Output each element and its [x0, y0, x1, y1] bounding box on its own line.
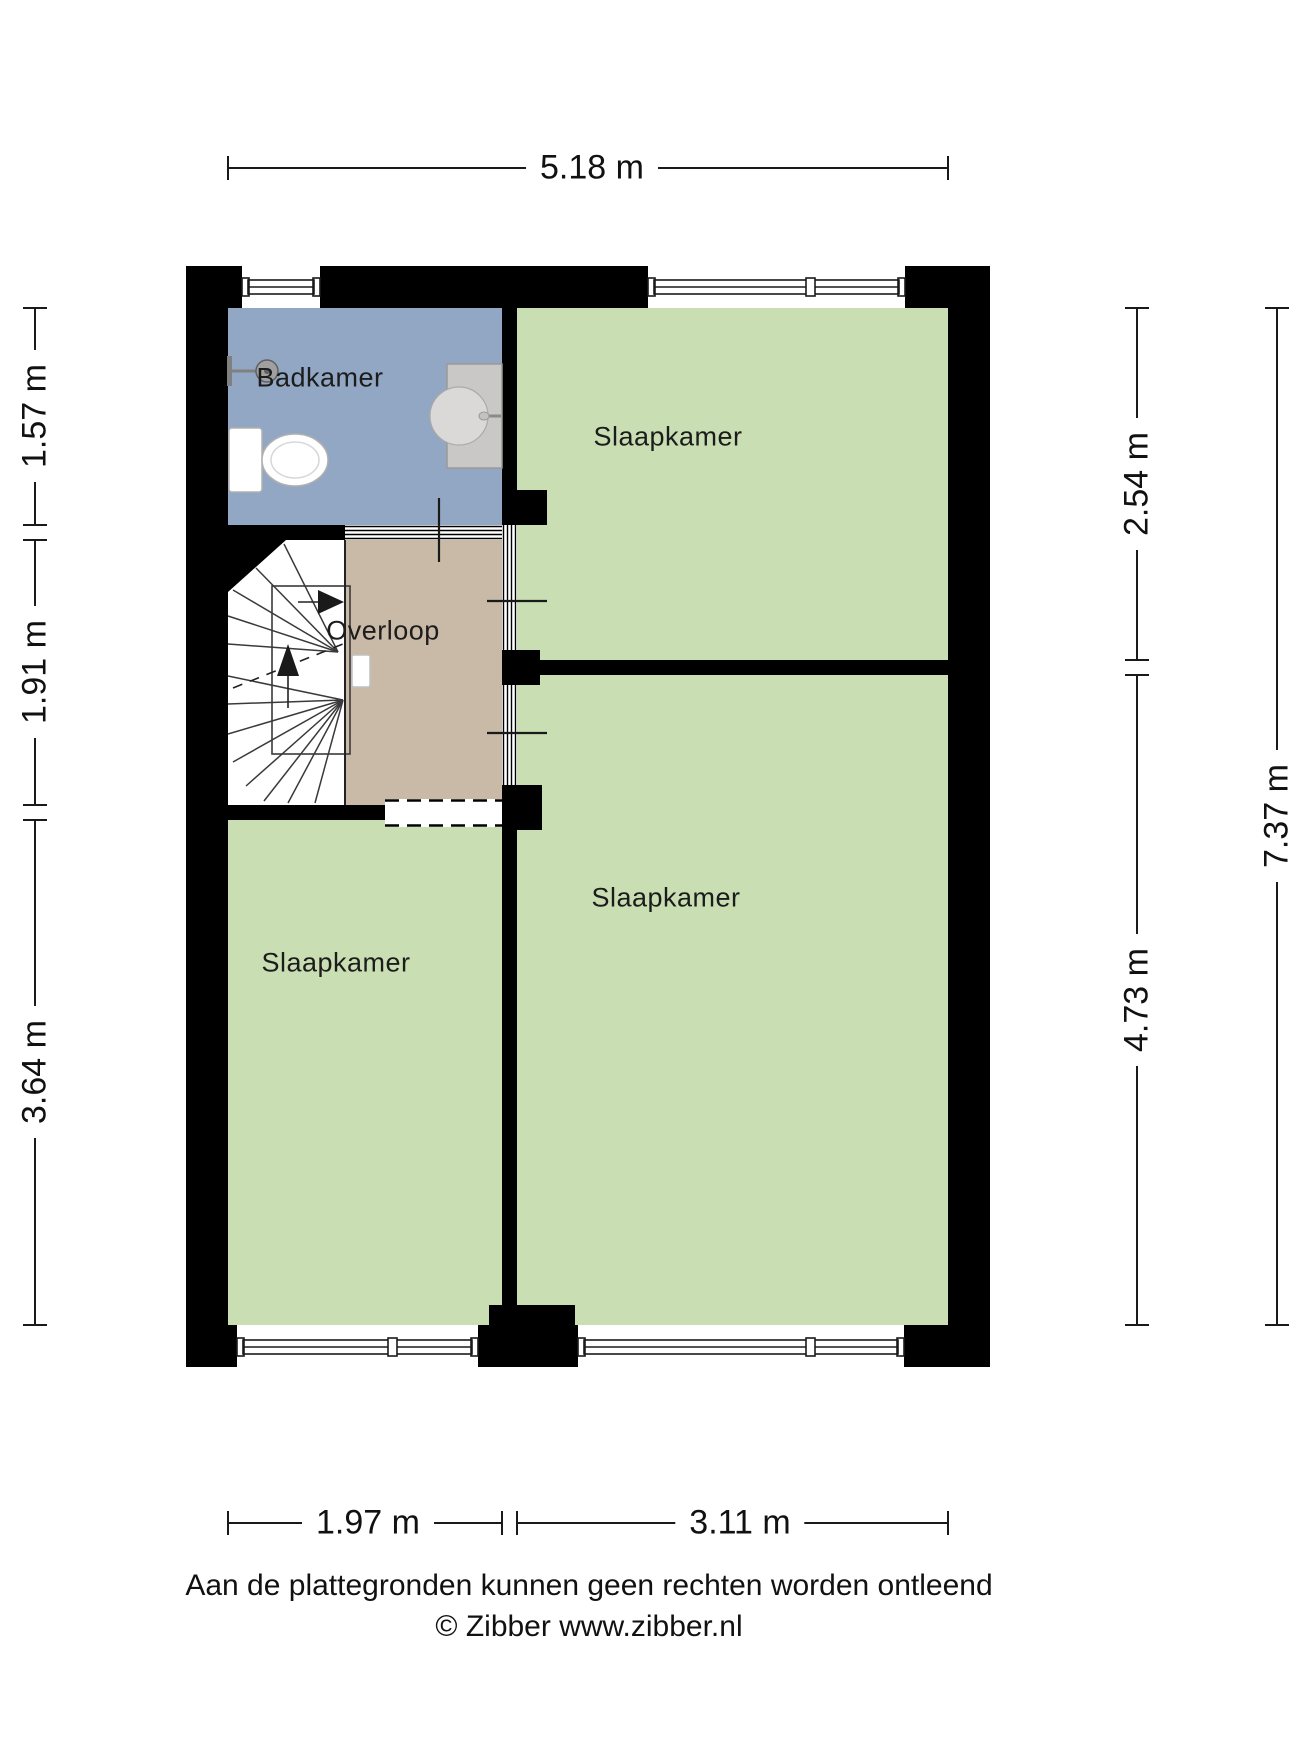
room-label-slaapkamer-top: Slaapkamer: [593, 422, 742, 453]
dim-label-left-middle: 1.91 m: [16, 606, 55, 738]
opening-overloop-bedroom: [385, 799, 502, 827]
wall-junction-block: [502, 650, 540, 685]
room-label-badkamer: Badkamer: [256, 363, 383, 394]
room-slaapkamer-top: [517, 308, 948, 660]
dim-label-right-top: 2.54 m: [1118, 418, 1157, 550]
dim-label-left-top: 1.57 m: [16, 350, 55, 482]
window-slaapkamer-top: [648, 266, 905, 308]
room-slaapkamer-left: [228, 820, 502, 1325]
window-slaapkamer-right: [578, 1325, 904, 1367]
building: [186, 266, 990, 1367]
room-slaapkamer-right: [517, 675, 948, 1325]
dim-label-right-bottom: 4.73 m: [1118, 934, 1157, 1066]
wall-pier-bottom: [489, 1305, 575, 1367]
room-label-slaapkamer-left: Slaapkamer: [261, 948, 410, 979]
door-leaf: [352, 655, 370, 687]
wall-junction-block: [502, 490, 547, 525]
window-badkamer: [242, 266, 320, 308]
dim-label-left-bottom: 3.64 m: [16, 1006, 55, 1138]
footer-copyright: © Zibber www.zibber.nl: [435, 1610, 742, 1644]
toilet-fixture: [229, 428, 328, 492]
room-label-slaapkamer-right: Slaapkamer: [591, 883, 740, 914]
dim-label-bottom-right: 3.11 m: [675, 1504, 804, 1543]
dim-label-bottom-left: 1.97 m: [302, 1504, 434, 1543]
floorplan-drawing: [0, 0, 1313, 1750]
room-label-overloop: Overloop: [326, 616, 440, 647]
wall-junction-block: [502, 785, 542, 830]
footer-disclaimer: Aan de plattegronden kunnen geen rechten…: [185, 1569, 992, 1603]
dim-label-right-total: 7.37 m: [1258, 750, 1297, 882]
floorplan-page: Badkamer Slaapkamer Overloop Slaapkamer …: [0, 0, 1313, 1750]
dim-label-top: 5.18 m: [526, 149, 658, 188]
window-slaapkamer-left: [237, 1325, 478, 1367]
